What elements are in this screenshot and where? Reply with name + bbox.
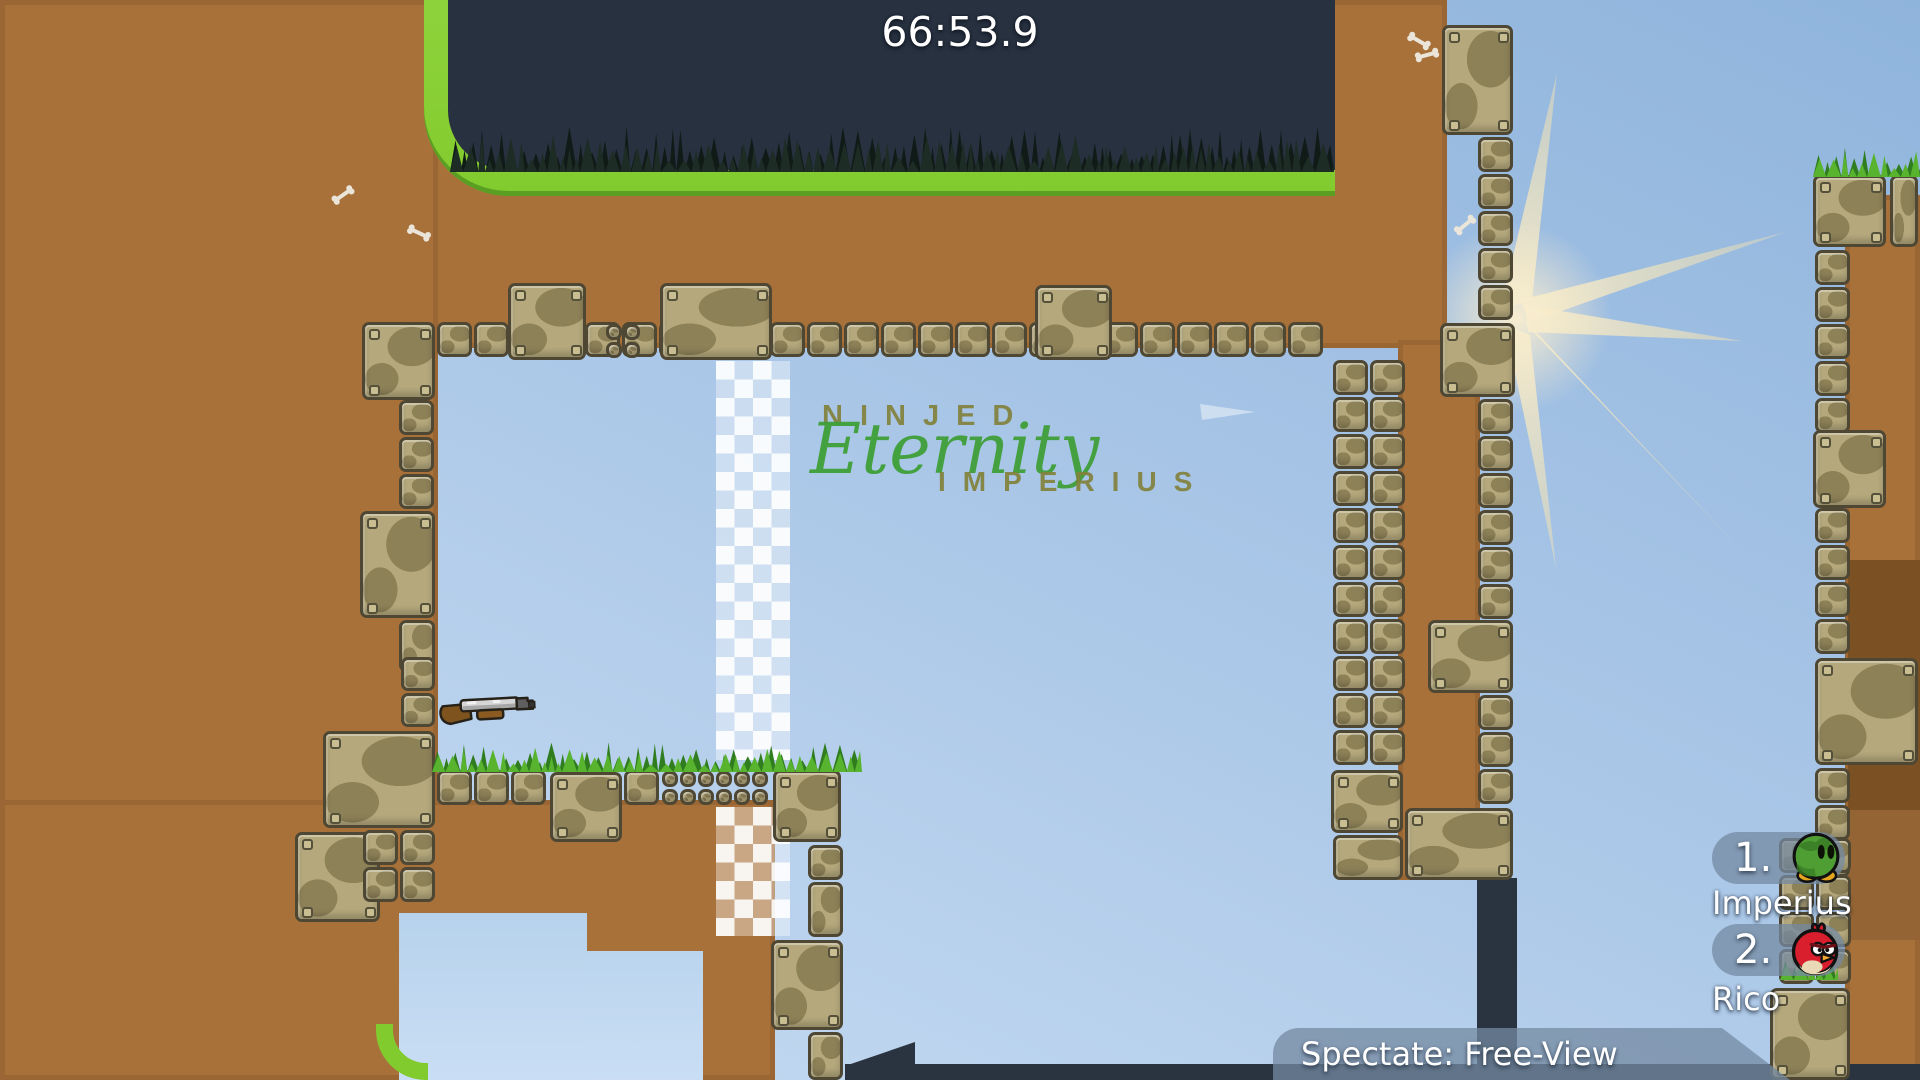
- stone-block: [1333, 619, 1368, 654]
- stone-block: [1333, 434, 1368, 469]
- block-rivet: [1500, 330, 1511, 341]
- stone-block: [1288, 322, 1323, 357]
- stone-block: [1813, 430, 1886, 508]
- block-rivet: [778, 1015, 789, 1026]
- stone-block: [508, 283, 586, 360]
- stone-block: [1251, 322, 1286, 357]
- stone-block: [1333, 397, 1368, 432]
- block-rivet: [557, 779, 568, 790]
- stone-block: [680, 789, 696, 805]
- stone-block: [752, 771, 768, 787]
- stone-block: [437, 322, 472, 357]
- block-rivet: [607, 827, 618, 838]
- spectate-mode-label: Spectate: Free-View: [1301, 1028, 1618, 1080]
- block-rivet: [420, 738, 431, 749]
- stone-block: [1770, 988, 1850, 1080]
- block-rivet: [420, 329, 431, 340]
- block-rivet: [1820, 232, 1831, 243]
- block-rivet: [1042, 292, 1053, 303]
- block-rivet: [330, 813, 341, 824]
- block-rivet: [1338, 818, 1349, 829]
- leaderboard-rank: 1.: [1734, 832, 1772, 884]
- stone-block: [734, 789, 750, 805]
- stone-block: [992, 322, 1027, 357]
- stone-block: [1478, 399, 1513, 434]
- stone-block: [401, 693, 435, 727]
- stone-block: [808, 845, 843, 880]
- stone-block: [1333, 582, 1368, 617]
- block-rivet: [1871, 232, 1882, 243]
- stone-block: [323, 731, 435, 828]
- stone-block: [698, 789, 714, 805]
- stone-block: [1815, 324, 1850, 359]
- stone-block: [1370, 582, 1405, 617]
- block-rivet: [367, 603, 378, 614]
- block-rivet: [826, 827, 837, 838]
- game-scene[interactable]: NINJED Eternity IMPERIUS 66:53.9 1.: [0, 0, 1920, 1080]
- block-rivet: [780, 777, 791, 788]
- stone-block: [399, 474, 434, 509]
- block-rivet: [1498, 627, 1509, 638]
- stone-block: [1478, 285, 1513, 320]
- block-rivet: [420, 813, 431, 824]
- stone-block: [660, 283, 772, 360]
- block-rivet: [1835, 1065, 1846, 1076]
- stone-block: [624, 324, 640, 340]
- block-rivet: [1042, 345, 1053, 356]
- block-rivet: [1435, 678, 1446, 689]
- stone-block: [662, 789, 678, 805]
- stone-block: [844, 322, 879, 357]
- block-rivet: [1412, 815, 1423, 826]
- stone-block: [1478, 174, 1513, 209]
- block-rivet: [302, 907, 313, 918]
- block-rivet: [1449, 120, 1460, 131]
- block-rivet: [515, 345, 526, 356]
- block-rivet: [1388, 777, 1399, 788]
- stone-block: [1333, 471, 1368, 506]
- stone-block: [773, 770, 841, 842]
- shotgun-pickup-icon: [436, 689, 538, 730]
- block-rivet: [302, 839, 313, 850]
- stone-block: [1333, 508, 1368, 543]
- stone-block: [698, 771, 714, 787]
- stone-block: [1035, 285, 1112, 360]
- stone-block: [1478, 473, 1513, 508]
- red-bird-tee-avatar: [1786, 920, 1846, 980]
- stone-block: [1370, 693, 1405, 728]
- block-rivet: [420, 518, 431, 529]
- leaderboard-player-name: Rico: [1712, 980, 1780, 1018]
- stone-block: [1428, 620, 1513, 693]
- spectate-bar: Spectate: Free-View: [1273, 1028, 1790, 1080]
- block-rivet: [515, 290, 526, 301]
- block-rivet: [1822, 665, 1833, 676]
- block-rivet: [1435, 627, 1446, 638]
- stone-block: [362, 322, 435, 400]
- block-rivet: [369, 329, 380, 340]
- stone-block: [606, 342, 622, 358]
- stone-block: [771, 940, 843, 1030]
- stone-block: [1370, 545, 1405, 580]
- block-rivet: [667, 290, 678, 301]
- block-rivet: [826, 777, 837, 788]
- stone-block: [401, 657, 435, 691]
- block-rivet: [757, 290, 768, 301]
- block-rivet: [1412, 865, 1423, 876]
- block-rivet: [1498, 120, 1509, 131]
- stone-block: [716, 771, 732, 787]
- block-rivet: [557, 827, 568, 838]
- stone-block: [807, 322, 842, 357]
- stone-block: [1177, 322, 1212, 357]
- stone-block: [1370, 730, 1405, 765]
- stone-block: [1214, 322, 1249, 357]
- stone-block: [1815, 361, 1850, 396]
- block-rivet: [1447, 382, 1458, 393]
- stone-block: [363, 830, 398, 865]
- stone-block: [955, 322, 990, 357]
- stone-block: [1813, 175, 1886, 247]
- stone-block: [1370, 434, 1405, 469]
- stone-block: [399, 437, 434, 472]
- block-rivet: [1820, 182, 1831, 193]
- stone-block: [808, 1032, 843, 1080]
- stone-block: [1815, 250, 1850, 285]
- block-rivet: [1338, 777, 1349, 788]
- block-rivet: [571, 290, 582, 301]
- stone-block: [1333, 835, 1403, 880]
- block-rivet: [367, 518, 378, 529]
- block-rivet: [1903, 750, 1914, 761]
- stone-block: [1478, 769, 1513, 804]
- block-rivet: [1498, 678, 1509, 689]
- stone-block: [624, 342, 640, 358]
- block-rivet: [778, 947, 789, 958]
- dirt-wall-core: [1398, 340, 1480, 880]
- stone-block: [1405, 808, 1513, 880]
- stone-block: [511, 770, 546, 805]
- block-rivet: [1097, 345, 1108, 356]
- stone-block: [437, 770, 472, 805]
- block-rivet: [369, 385, 380, 396]
- block-rivet: [607, 779, 618, 790]
- block-rivet: [828, 1015, 839, 1026]
- block-rivet: [1871, 182, 1882, 193]
- stone-block: [1815, 508, 1850, 543]
- stone-block: [606, 324, 622, 340]
- stone-block: [1370, 471, 1405, 506]
- leaderboard-rank: 2.: [1734, 924, 1772, 976]
- stone-block: [1370, 360, 1405, 395]
- stone-block: [400, 830, 435, 865]
- map-text-imperius: IMPERIUS: [938, 466, 1209, 498]
- block-rivet: [420, 385, 431, 396]
- stone-block: [1333, 656, 1368, 691]
- block-rivet: [1388, 818, 1399, 829]
- stone-block: [1890, 175, 1918, 247]
- freeze-tile-column: [716, 361, 790, 760]
- stone-block: [399, 400, 434, 435]
- stone-block: [680, 771, 696, 787]
- stone-block: [1478, 510, 1513, 545]
- stone-block: [1815, 287, 1850, 322]
- stone-block: [1331, 770, 1403, 833]
- stone-block: [1370, 508, 1405, 543]
- stone-block: [1333, 545, 1368, 580]
- block-rivet: [780, 827, 791, 838]
- block-rivet: [571, 345, 582, 356]
- block-rivet: [1835, 995, 1846, 1006]
- block-rivet: [1498, 815, 1509, 826]
- stone-block: [363, 867, 398, 902]
- stone-block: [1333, 730, 1368, 765]
- stone-block: [474, 770, 509, 805]
- leaderboard-player-name: Imperius: [1712, 884, 1852, 922]
- block-rivet: [1903, 665, 1914, 676]
- stone-block: [662, 771, 678, 787]
- stone-block: [1478, 137, 1513, 172]
- block-rivet: [1820, 493, 1831, 504]
- stone-block: [1478, 211, 1513, 246]
- stone-block: [1333, 693, 1368, 728]
- block-rivet: [1871, 493, 1882, 504]
- block-rivet: [365, 907, 376, 918]
- stone-block: [1478, 436, 1513, 471]
- stone-block: [1478, 732, 1513, 767]
- stone-block: [808, 882, 843, 937]
- stone-block: [734, 771, 750, 787]
- stone-block: [918, 322, 953, 357]
- block-rivet: [1820, 437, 1831, 448]
- stone-block: [1370, 397, 1405, 432]
- block-rivet: [1871, 437, 1882, 448]
- block-rivet: [1822, 750, 1833, 761]
- stone-block: [1815, 545, 1850, 580]
- stone-block: [770, 322, 805, 357]
- stone-block: [400, 867, 435, 902]
- block-rivet: [1500, 382, 1511, 393]
- stone-block: [1815, 582, 1850, 617]
- block-rivet: [667, 345, 678, 356]
- stone-block: [1440, 323, 1515, 397]
- block-rivet: [757, 345, 768, 356]
- stone-block: [881, 322, 916, 357]
- block-rivet: [330, 738, 341, 749]
- stone-block: [1478, 584, 1513, 619]
- stone-block: [1140, 322, 1175, 357]
- stone-block: [1478, 547, 1513, 582]
- stone-block: [1815, 398, 1850, 433]
- block-rivet: [1498, 865, 1509, 876]
- green-camo-tee-avatar: [1788, 830, 1844, 886]
- stone-block: [474, 322, 509, 357]
- stone-block: [1815, 658, 1918, 765]
- block-rivet: [420, 603, 431, 614]
- stone-block: [752, 789, 768, 805]
- stone-block: [1333, 360, 1368, 395]
- block-rivet: [1447, 330, 1458, 341]
- stone-block: [1370, 619, 1405, 654]
- stone-block: [1815, 768, 1850, 803]
- stone-block: [624, 770, 659, 805]
- stone-block: [1478, 248, 1513, 283]
- dirt-mid-band: [1848, 810, 1920, 940]
- stone-block: [550, 772, 622, 842]
- stone-block: [1478, 695, 1513, 730]
- block-rivet: [828, 947, 839, 958]
- block-rivet: [1097, 292, 1108, 303]
- stone-block: [1815, 619, 1850, 654]
- race-timer: 66:53.9: [0, 8, 1920, 56]
- stone-block: [360, 511, 435, 618]
- carved-room-sky-step: [585, 951, 703, 1080]
- stone-block: [1370, 656, 1405, 691]
- stone-block: [716, 789, 732, 805]
